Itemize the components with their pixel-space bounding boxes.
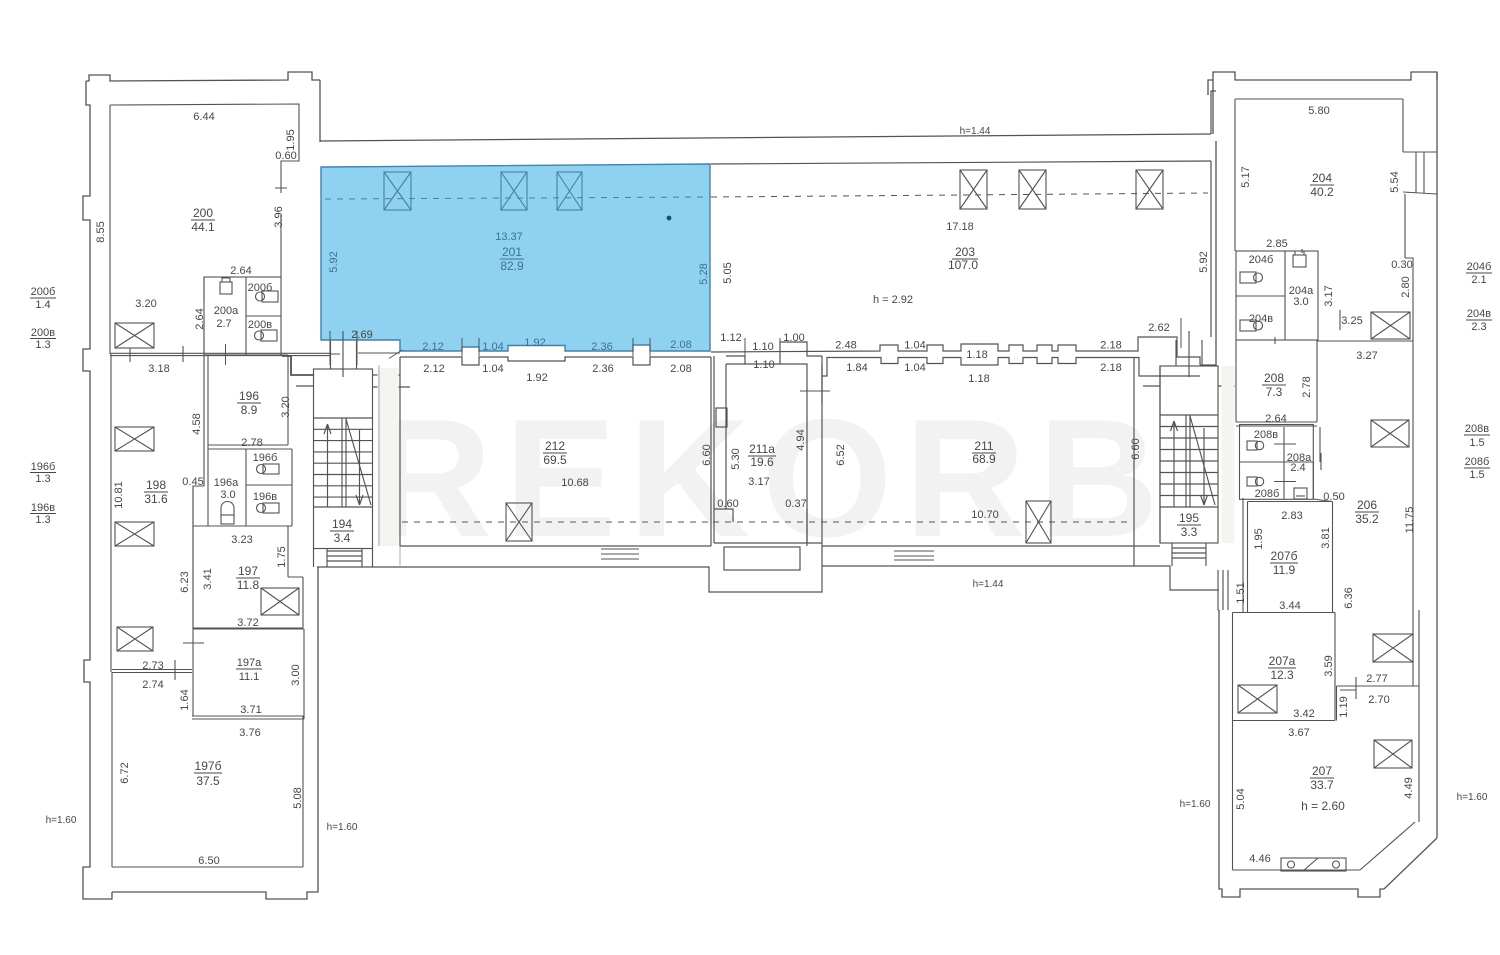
svg-text:2.18: 2.18	[1100, 340, 1121, 352]
svg-text:4.58: 4.58	[191, 413, 203, 434]
svg-text:200а: 200а	[214, 305, 239, 317]
svg-text:2.77: 2.77	[1366, 673, 1387, 685]
svg-text:1.12: 1.12	[720, 332, 741, 344]
svg-text:211а: 211а	[749, 442, 775, 456]
svg-text:3.17: 3.17	[1323, 285, 1335, 306]
svg-text:3.81: 3.81	[1320, 527, 1332, 548]
svg-text:8.55: 8.55	[95, 221, 107, 242]
svg-text:1.10: 1.10	[752, 341, 773, 353]
svg-text:3.59: 3.59	[1323, 655, 1335, 676]
svg-text:4.46: 4.46	[1249, 853, 1270, 865]
svg-text:h = 2.92: h = 2.92	[873, 294, 913, 306]
svg-text:211: 211	[974, 439, 993, 453]
svg-text:198: 198	[146, 478, 166, 492]
svg-text:6.72: 6.72	[119, 762, 131, 783]
svg-text:5.17: 5.17	[1240, 166, 1252, 187]
svg-text:1.5: 1.5	[1469, 437, 1484, 449]
svg-text:2.80: 2.80	[1400, 276, 1412, 297]
svg-text:208б: 208б	[1465, 456, 1490, 468]
svg-text:200б: 200б	[248, 282, 273, 294]
svg-text:68.9: 68.9	[972, 452, 996, 466]
svg-text:201: 201	[502, 245, 522, 259]
svg-text:1.3: 1.3	[35, 473, 50, 485]
svg-text:6.36: 6.36	[1343, 587, 1355, 608]
svg-text:197б: 197б	[195, 759, 222, 773]
svg-text:2.4: 2.4	[1290, 462, 1305, 474]
svg-text:2.64: 2.64	[230, 265, 251, 277]
svg-text:197: 197	[238, 564, 258, 578]
svg-text:196б: 196б	[253, 452, 278, 464]
svg-text:196б: 196б	[31, 461, 56, 473]
svg-text:6.50: 6.50	[198, 855, 219, 867]
svg-text:0.30: 0.30	[1391, 259, 1412, 271]
svg-text:5.08: 5.08	[292, 787, 304, 808]
svg-text:0.45: 0.45	[182, 476, 203, 488]
svg-text:6.44: 6.44	[193, 111, 214, 123]
svg-text:h = 2.60: h = 2.60	[1301, 799, 1345, 813]
svg-text:204: 204	[1312, 171, 1332, 185]
svg-text:10.81: 10.81	[113, 481, 125, 509]
svg-text:3.0: 3.0	[1293, 296, 1308, 308]
svg-text:35.2: 35.2	[1355, 512, 1379, 526]
svg-text:1.92: 1.92	[526, 372, 547, 384]
svg-text:5.28: 5.28	[698, 263, 710, 284]
svg-text:10.70: 10.70	[971, 509, 999, 521]
svg-text:5.80: 5.80	[1308, 105, 1329, 117]
svg-text:2.1: 2.1	[1471, 274, 1486, 286]
svg-text:h=1.44: h=1.44	[973, 579, 1004, 590]
svg-text:11.75: 11.75	[1404, 507, 1416, 534]
svg-text:2.70: 2.70	[1368, 694, 1389, 706]
svg-text:3.23: 3.23	[231, 534, 252, 546]
svg-text:3.42: 3.42	[1293, 708, 1314, 720]
svg-text:2.08: 2.08	[670, 339, 691, 351]
svg-text:195: 195	[1179, 511, 1199, 525]
svg-text:2.85: 2.85	[1266, 238, 1287, 250]
svg-text:3.3: 3.3	[1181, 525, 1198, 539]
svg-text:3.67: 3.67	[1288, 727, 1309, 739]
svg-text:13.37: 13.37	[495, 231, 523, 243]
svg-text:1.4: 1.4	[35, 299, 50, 311]
svg-text:2.08: 2.08	[670, 363, 691, 375]
svg-text:107.0: 107.0	[948, 258, 978, 272]
svg-text:2.64: 2.64	[194, 308, 206, 329]
svg-text:12.3: 12.3	[1270, 668, 1294, 682]
svg-text:1.19: 1.19	[1338, 696, 1350, 717]
svg-text:196в: 196в	[253, 491, 277, 503]
svg-text:2.7: 2.7	[216, 318, 231, 330]
svg-text:37.5: 37.5	[196, 774, 220, 788]
svg-text:206: 206	[1357, 498, 1377, 512]
svg-text:200: 200	[193, 206, 213, 220]
svg-text:2.64: 2.64	[1265, 413, 1286, 425]
svg-text:11.8: 11.8	[237, 578, 260, 592]
svg-text:6.52: 6.52	[835, 444, 847, 465]
svg-text:212: 212	[545, 439, 565, 453]
svg-text:204б: 204б	[1249, 254, 1274, 266]
svg-text:3.17: 3.17	[748, 476, 769, 488]
svg-text:5.30: 5.30	[730, 448, 742, 469]
svg-text:208в: 208в	[1465, 423, 1489, 435]
svg-text:6.60: 6.60	[701, 444, 713, 465]
svg-text:207а: 207а	[1269, 654, 1296, 668]
svg-text:1.04: 1.04	[482, 363, 503, 375]
svg-text:1.95: 1.95	[285, 129, 297, 150]
svg-text:200б: 200б	[31, 286, 56, 298]
svg-text:2.74: 2.74	[142, 679, 163, 691]
svg-text:10.68: 10.68	[561, 477, 589, 489]
svg-text:19.6: 19.6	[750, 455, 774, 469]
svg-text:204б: 204б	[1467, 261, 1492, 273]
svg-text:6.60: 6.60	[1130, 438, 1142, 459]
svg-text:h=1.44: h=1.44	[960, 126, 991, 137]
svg-text:0.60: 0.60	[717, 498, 738, 510]
svg-text:3.71: 3.71	[240, 704, 261, 716]
svg-text:208б: 208б	[1255, 488, 1280, 500]
svg-text:11.9: 11.9	[1273, 563, 1296, 577]
svg-text:2.18: 2.18	[1100, 362, 1121, 374]
svg-text:2.69: 2.69	[351, 329, 372, 341]
svg-text:3.0: 3.0	[220, 489, 235, 501]
svg-text:3.72: 3.72	[237, 617, 258, 629]
svg-text:5.92: 5.92	[1198, 251, 1210, 272]
svg-text:0.60: 0.60	[275, 150, 296, 162]
svg-text:h=1.60: h=1.60	[1457, 792, 1488, 803]
svg-text:197а: 197а	[237, 657, 262, 669]
svg-text:207: 207	[1312, 764, 1332, 778]
svg-text:204в: 204в	[1467, 308, 1491, 320]
svg-text:2.3: 2.3	[1471, 321, 1486, 333]
svg-text:1.51: 1.51	[1235, 582, 1247, 603]
svg-text:1.04: 1.04	[904, 362, 925, 374]
svg-text:0.37: 0.37	[785, 498, 806, 510]
svg-text:3.20: 3.20	[280, 396, 292, 417]
svg-text:3.20: 3.20	[135, 298, 156, 310]
svg-text:h=1.60: h=1.60	[1180, 799, 1211, 810]
svg-text:31.6: 31.6	[144, 492, 168, 506]
svg-text:1.04: 1.04	[904, 340, 925, 352]
svg-text:2.36: 2.36	[591, 341, 612, 353]
svg-text:REKORB: REKORB	[371, 384, 1171, 572]
svg-text:1.18: 1.18	[968, 373, 989, 385]
svg-text:1.18: 1.18	[966, 349, 987, 361]
svg-text:203: 203	[955, 245, 975, 259]
svg-text:200в: 200в	[248, 319, 272, 331]
svg-text:44.1: 44.1	[191, 220, 215, 234]
svg-text:1.10: 1.10	[753, 359, 774, 371]
svg-text:1.3: 1.3	[35, 514, 50, 526]
svg-text:5.05: 5.05	[722, 262, 734, 283]
svg-text:2.78: 2.78	[241, 437, 262, 449]
svg-text:3.27: 3.27	[1356, 350, 1377, 362]
svg-text:194: 194	[332, 517, 352, 531]
svg-text:3.00: 3.00	[290, 664, 302, 685]
svg-text:33.7: 33.7	[1310, 778, 1334, 792]
svg-text:8.9: 8.9	[241, 403, 258, 417]
svg-text:5.54: 5.54	[1389, 171, 1401, 192]
svg-text:1.04: 1.04	[482, 341, 503, 353]
svg-text:1.92: 1.92	[524, 337, 545, 349]
svg-text:2.83: 2.83	[1281, 510, 1302, 522]
svg-text:207б: 207б	[1271, 549, 1298, 563]
svg-text:h=1.60: h=1.60	[327, 822, 358, 833]
svg-text:5.04: 5.04	[1235, 788, 1247, 809]
svg-text:11.1: 11.1	[239, 671, 260, 683]
svg-text:208: 208	[1264, 371, 1284, 385]
svg-text:6.23: 6.23	[179, 571, 191, 592]
svg-text:82.9: 82.9	[500, 259, 524, 273]
svg-text:3.44: 3.44	[1279, 600, 1300, 612]
svg-text:1.95: 1.95	[1253, 528, 1265, 549]
svg-text:4.49: 4.49	[1403, 777, 1415, 798]
svg-text:1.5: 1.5	[1469, 469, 1484, 481]
svg-text:200в: 200в	[31, 327, 55, 339]
svg-text:7.3: 7.3	[1266, 385, 1283, 399]
svg-text:2.73: 2.73	[142, 660, 163, 672]
svg-text:40.2: 40.2	[1310, 185, 1334, 199]
svg-text:3.18: 3.18	[148, 363, 169, 375]
svg-text:196а: 196а	[214, 477, 239, 489]
svg-text:3.76: 3.76	[239, 727, 260, 739]
svg-text:3.96: 3.96	[273, 206, 285, 227]
svg-text:4.94: 4.94	[795, 429, 807, 450]
svg-text:1.75: 1.75	[276, 546, 288, 567]
svg-text:196: 196	[239, 389, 259, 403]
svg-text:69.5: 69.5	[543, 453, 567, 467]
svg-text:0.50: 0.50	[1323, 491, 1344, 503]
svg-text:1.84: 1.84	[846, 362, 867, 374]
svg-text:3.41: 3.41	[202, 568, 214, 589]
svg-text:2.12: 2.12	[423, 363, 444, 375]
svg-text:3.25: 3.25	[1341, 315, 1362, 327]
svg-text:2.78: 2.78	[1301, 376, 1313, 397]
svg-text:2.36: 2.36	[592, 363, 613, 375]
svg-text:2.48: 2.48	[835, 340, 856, 352]
svg-text:2.12: 2.12	[422, 341, 443, 353]
svg-text:204в: 204в	[1249, 313, 1273, 325]
svg-text:5.92: 5.92	[328, 251, 340, 272]
svg-text:2.62: 2.62	[1148, 322, 1169, 334]
svg-text:h=1.60: h=1.60	[46, 815, 77, 826]
svg-text:1.3: 1.3	[35, 339, 50, 351]
svg-text:17.18: 17.18	[946, 221, 974, 233]
svg-text:208в: 208в	[1254, 429, 1278, 441]
svg-text:1.00: 1.00	[783, 332, 804, 344]
svg-text:1.64: 1.64	[179, 689, 191, 710]
svg-text:3.4: 3.4	[334, 531, 351, 545]
svg-text:196в: 196в	[31, 502, 55, 514]
